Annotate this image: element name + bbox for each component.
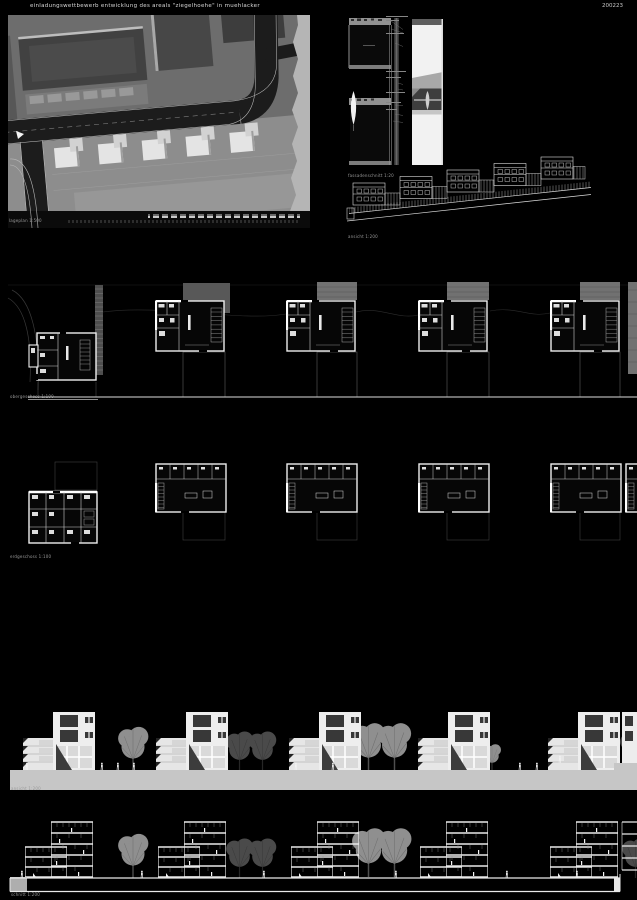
- competition-board: einladungswettbewerb entwicklung des are…: [0, 0, 637, 900]
- detail-annotation: [386, 109, 397, 110]
- section-label: schnitt 1:200: [11, 892, 40, 897]
- detail-annotation: [386, 71, 406, 72]
- street-row-label: ansicht 1:200: [348, 234, 378, 239]
- elevation-label: ansicht 1:200: [11, 786, 41, 791]
- detail-annotation: [386, 33, 404, 34]
- ground-plans-label: erdgeschoss 1:100: [10, 554, 51, 559]
- facade-render-strip: [412, 19, 443, 165]
- detail-annotation: [386, 77, 401, 78]
- site-plan-drawing: [8, 15, 310, 228]
- upper-floor-plans-row: [0, 278, 637, 412]
- ground-floor-plans-row: [0, 450, 637, 565]
- board-title: einladungswettbewerb entwicklung des are…: [30, 3, 260, 9]
- cross-section-drawing: [0, 812, 637, 898]
- detail-annotation: [386, 20, 399, 21]
- detail-annotation: [386, 92, 405, 93]
- street-row-elevation: [345, 150, 593, 240]
- site-plan-label: lageplan 1:500: [9, 218, 42, 223]
- detail-annotation: [386, 16, 408, 17]
- detail-annotation: [386, 102, 401, 103]
- facade-detail-drawing: [345, 13, 403, 173]
- entry-code: 200223: [602, 3, 623, 9]
- upper-plans-label: obergeschoss 1:100: [10, 394, 54, 399]
- street-elevation-drawing: [0, 698, 637, 795]
- facade-detail-label: fassadenschnitt 1:20: [348, 173, 394, 178]
